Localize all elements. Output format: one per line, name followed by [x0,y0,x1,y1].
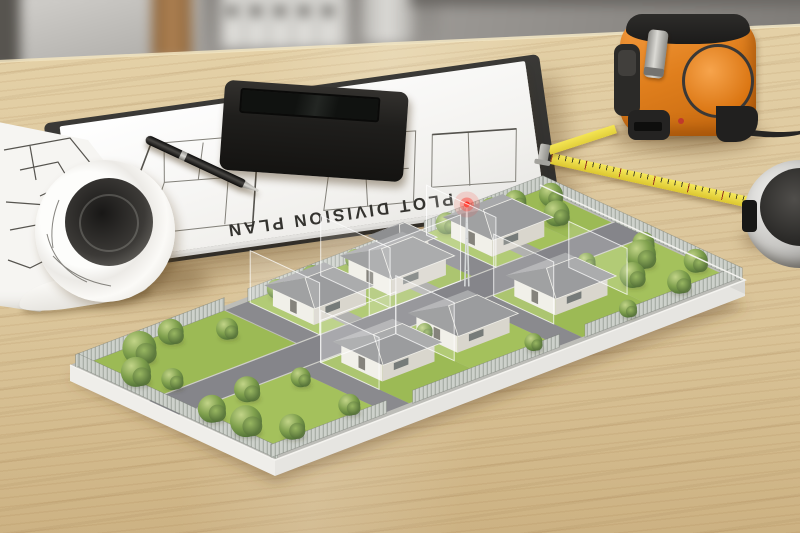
site-model [0,0,800,533]
desk-scene: PLOT DIVISION PLAN [0,0,800,533]
tree [230,405,262,438]
